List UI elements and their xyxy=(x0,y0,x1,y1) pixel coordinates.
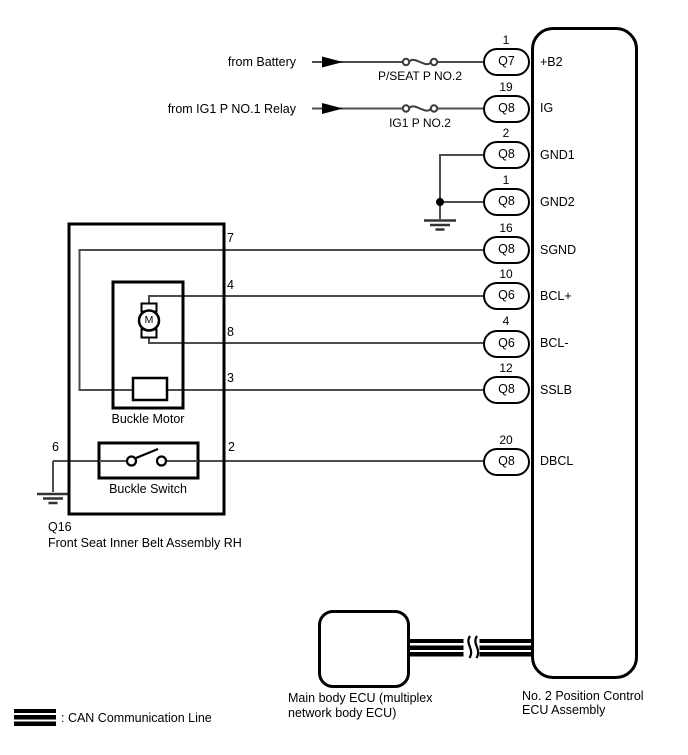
ecu-label-line2: ECU Assembly xyxy=(522,703,605,717)
pin-name: GND1 xyxy=(540,148,575,163)
pin-name: BCL+ xyxy=(540,289,572,304)
buckle-sensor-block xyxy=(133,378,167,400)
connector-oval: Q8 xyxy=(483,448,530,476)
connector-oval: Q6 xyxy=(483,282,530,310)
pin-name: SGND xyxy=(540,243,576,258)
assembly-connector-code: Q16 xyxy=(48,520,72,534)
pin-number: 4 xyxy=(483,314,529,328)
terminal-number-bcl-minus: 8 xyxy=(227,325,234,339)
assembly-label: Front Seat Inner Belt Assembly RH xyxy=(48,536,242,550)
pin-name: SSLB xyxy=(540,383,572,398)
buckle-switch-label: Buckle Switch xyxy=(88,482,208,496)
connector-oval: Q8 xyxy=(483,95,530,123)
main-body-ecu-label-line2: network body ECU) xyxy=(288,706,396,720)
left-ground xyxy=(37,461,69,503)
can-line xyxy=(410,634,531,660)
arrow-right-icon xyxy=(322,103,343,114)
motor-symbol-letter: M xyxy=(141,314,157,327)
can-line-legend-icon xyxy=(14,709,56,726)
terminal-number-bcl-plus: 4 xyxy=(227,278,234,292)
fuse-icon xyxy=(403,59,437,65)
pin-number: 10 xyxy=(483,267,529,281)
connector-oval: Q7 xyxy=(483,48,530,76)
battery-source-label: from Battery xyxy=(150,55,296,69)
can-legend-label: : CAN Communication Line xyxy=(61,711,212,725)
terminal-number-sgnd: 7 xyxy=(227,231,234,245)
pin-number: 16 xyxy=(483,221,529,235)
ground-icon xyxy=(37,494,69,503)
connector-oval: Q8 xyxy=(483,188,530,216)
connector-oval: Q8 xyxy=(483,141,530,169)
pin-name: IG xyxy=(540,101,553,116)
pin-name: BCL- xyxy=(540,336,568,351)
pin-name: GND2 xyxy=(540,195,575,210)
pin-number: 12 xyxy=(483,361,529,375)
ground-wires xyxy=(424,155,484,230)
ig-feed-wire xyxy=(312,103,484,114)
main-body-ecu-label-line1: Main body ECU (multiplex xyxy=(288,691,433,705)
bcl-wires xyxy=(149,296,484,343)
arrow-right-icon xyxy=(322,57,343,68)
junction-dot xyxy=(436,198,444,206)
terminal-number-dbcl: 2 xyxy=(228,440,235,454)
buckle-motor-label: Buckle Motor xyxy=(88,412,208,426)
buckle-switch-box xyxy=(99,443,198,478)
battery-fuse-label: P/SEAT P NO.2 xyxy=(360,69,480,83)
pin-name: DBCL xyxy=(540,454,573,469)
terminal-number-sslb: 3 xyxy=(227,371,234,385)
connector-oval: Q6 xyxy=(483,330,530,358)
fuse-icon xyxy=(403,105,437,111)
pin-number: 1 xyxy=(483,33,529,47)
pin-number: 2 xyxy=(483,126,529,140)
pin-number: 20 xyxy=(483,433,529,447)
pin-name: +B2 xyxy=(540,55,563,70)
wiring-diagram: from Battery P/SEAT P NO.2 from IG1 P NO… xyxy=(0,0,688,755)
battery-feed-wire xyxy=(312,57,484,68)
ecu-label-line1: No. 2 Position Control xyxy=(522,689,644,703)
pin-number: 19 xyxy=(483,80,529,94)
main-body-ecu-box xyxy=(318,610,410,688)
ig-source-label: from IG1 P NO.1 Relay xyxy=(120,102,296,116)
pin-number: 1 xyxy=(483,173,529,187)
ground-icon xyxy=(424,221,456,230)
terminal-number-ground: 6 xyxy=(52,440,59,454)
connector-oval: Q8 xyxy=(483,376,530,404)
ig-fuse-label: IG1 P NO.2 xyxy=(360,116,480,130)
connector-oval: Q8 xyxy=(483,236,530,264)
